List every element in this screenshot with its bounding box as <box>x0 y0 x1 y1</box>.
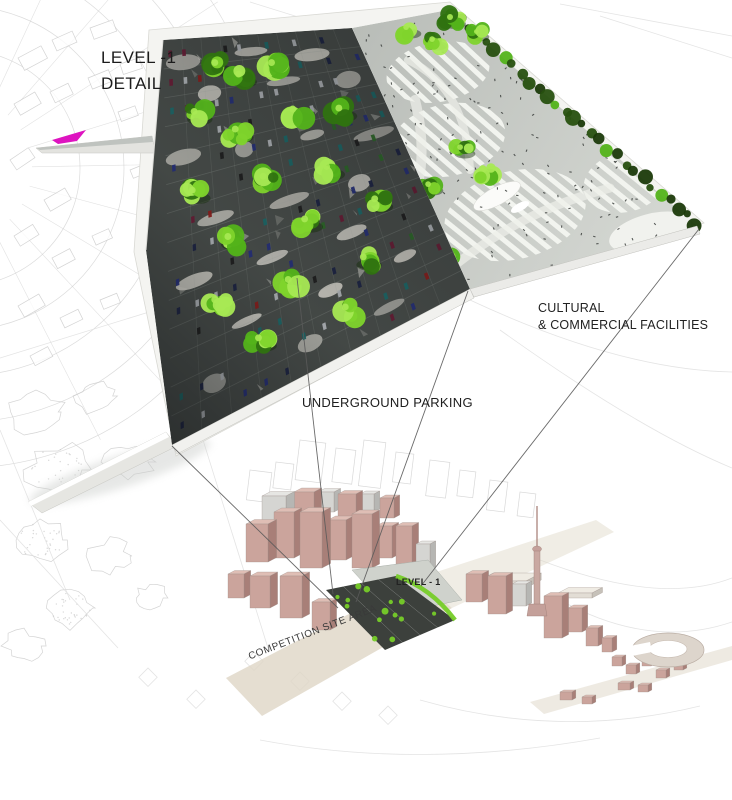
entry-ramp-upper <box>36 136 156 153</box>
label-cultural-line2: & COMMERCIAL FACILITIES <box>538 317 708 334</box>
label-cultural-line1: CULTURAL <box>538 300 708 317</box>
label-level-minus-1: LEVEL - 1 <box>396 577 441 587</box>
label-level-detail: LEVEL -1 DETAIL <box>101 45 176 98</box>
label-underground-parking: UNDERGROUND PARKING <box>302 395 473 410</box>
ring-building <box>630 633 704 667</box>
site-context-massing-model <box>226 440 732 716</box>
label-level-detail-line1: LEVEL -1 <box>101 45 176 71</box>
architectural-diagram: LEVEL -1 DETAIL CULTURAL & COMMERCIAL FA… <box>0 0 732 800</box>
magenta-arrow <box>52 130 86 144</box>
label-cultural-commercial: CULTURAL & COMMERCIAL FACILITIES <box>538 300 708 334</box>
label-level-detail-line2: DETAIL <box>101 71 176 97</box>
